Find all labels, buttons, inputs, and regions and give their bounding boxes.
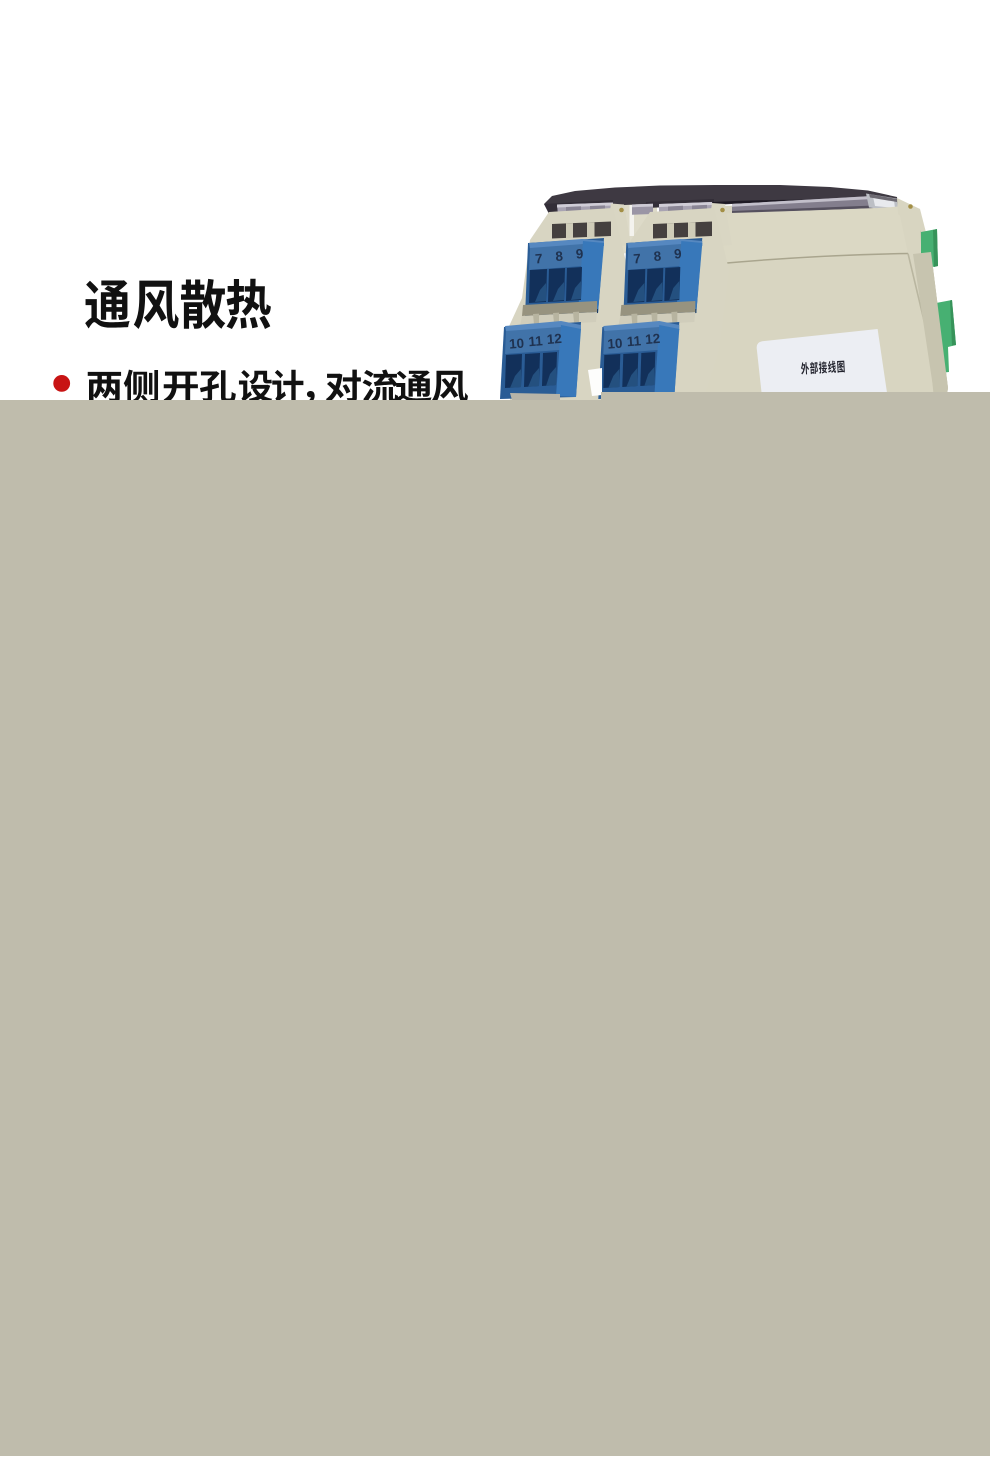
- svg-text:11: 11: [626, 333, 642, 349]
- svg-text:9: 9: [674, 246, 683, 261]
- svg-text:9: 9: [575, 246, 584, 261]
- svg-text:12: 12: [645, 331, 661, 347]
- svg-text:12: 12: [546, 331, 562, 347]
- svg-text:11: 11: [528, 333, 544, 349]
- svg-text:7: 7: [534, 251, 543, 266]
- svg-text:10: 10: [509, 336, 525, 352]
- svg-text:7: 7: [633, 251, 642, 266]
- svg-text:10: 10: [607, 336, 623, 352]
